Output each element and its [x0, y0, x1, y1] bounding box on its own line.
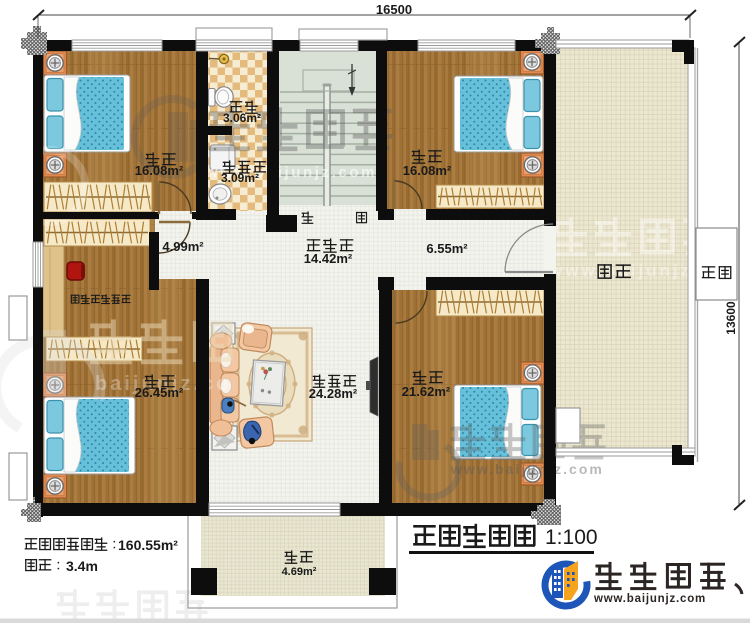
svg-text:www.baijunjz.com: www.baijunjz.com	[450, 461, 604, 477]
svg-text:16500: 16500	[376, 2, 412, 17]
svg-text:4.69m²: 4.69m²	[282, 566, 317, 578]
svg-text:21.62m²: 21.62m²	[402, 384, 451, 399]
svg-text:6.55m²: 6.55m²	[426, 241, 468, 256]
svg-text:16.08m²: 16.08m²	[135, 163, 184, 178]
svg-text:www.baijunjz.com: www.baijunjz.com	[593, 593, 706, 605]
svg-text:13600: 13600	[724, 301, 738, 335]
svg-text:14.42m²: 14.42m²	[304, 251, 353, 266]
svg-text:160.55m²: 160.55m²	[118, 537, 178, 553]
svg-text:3.09m²: 3.09m²	[221, 171, 259, 185]
svg-text:1:100: 1:100	[545, 526, 598, 549]
svg-text:4.99m²: 4.99m²	[162, 239, 204, 254]
svg-text:24.28m²: 24.28m²	[309, 386, 358, 401]
svg-text:26.45m²: 26.45m²	[135, 385, 184, 400]
svg-text:3.4m: 3.4m	[66, 558, 98, 574]
svg-text:16.08m²: 16.08m²	[403, 163, 452, 178]
svg-text:3.06m²: 3.06m²	[223, 111, 261, 125]
